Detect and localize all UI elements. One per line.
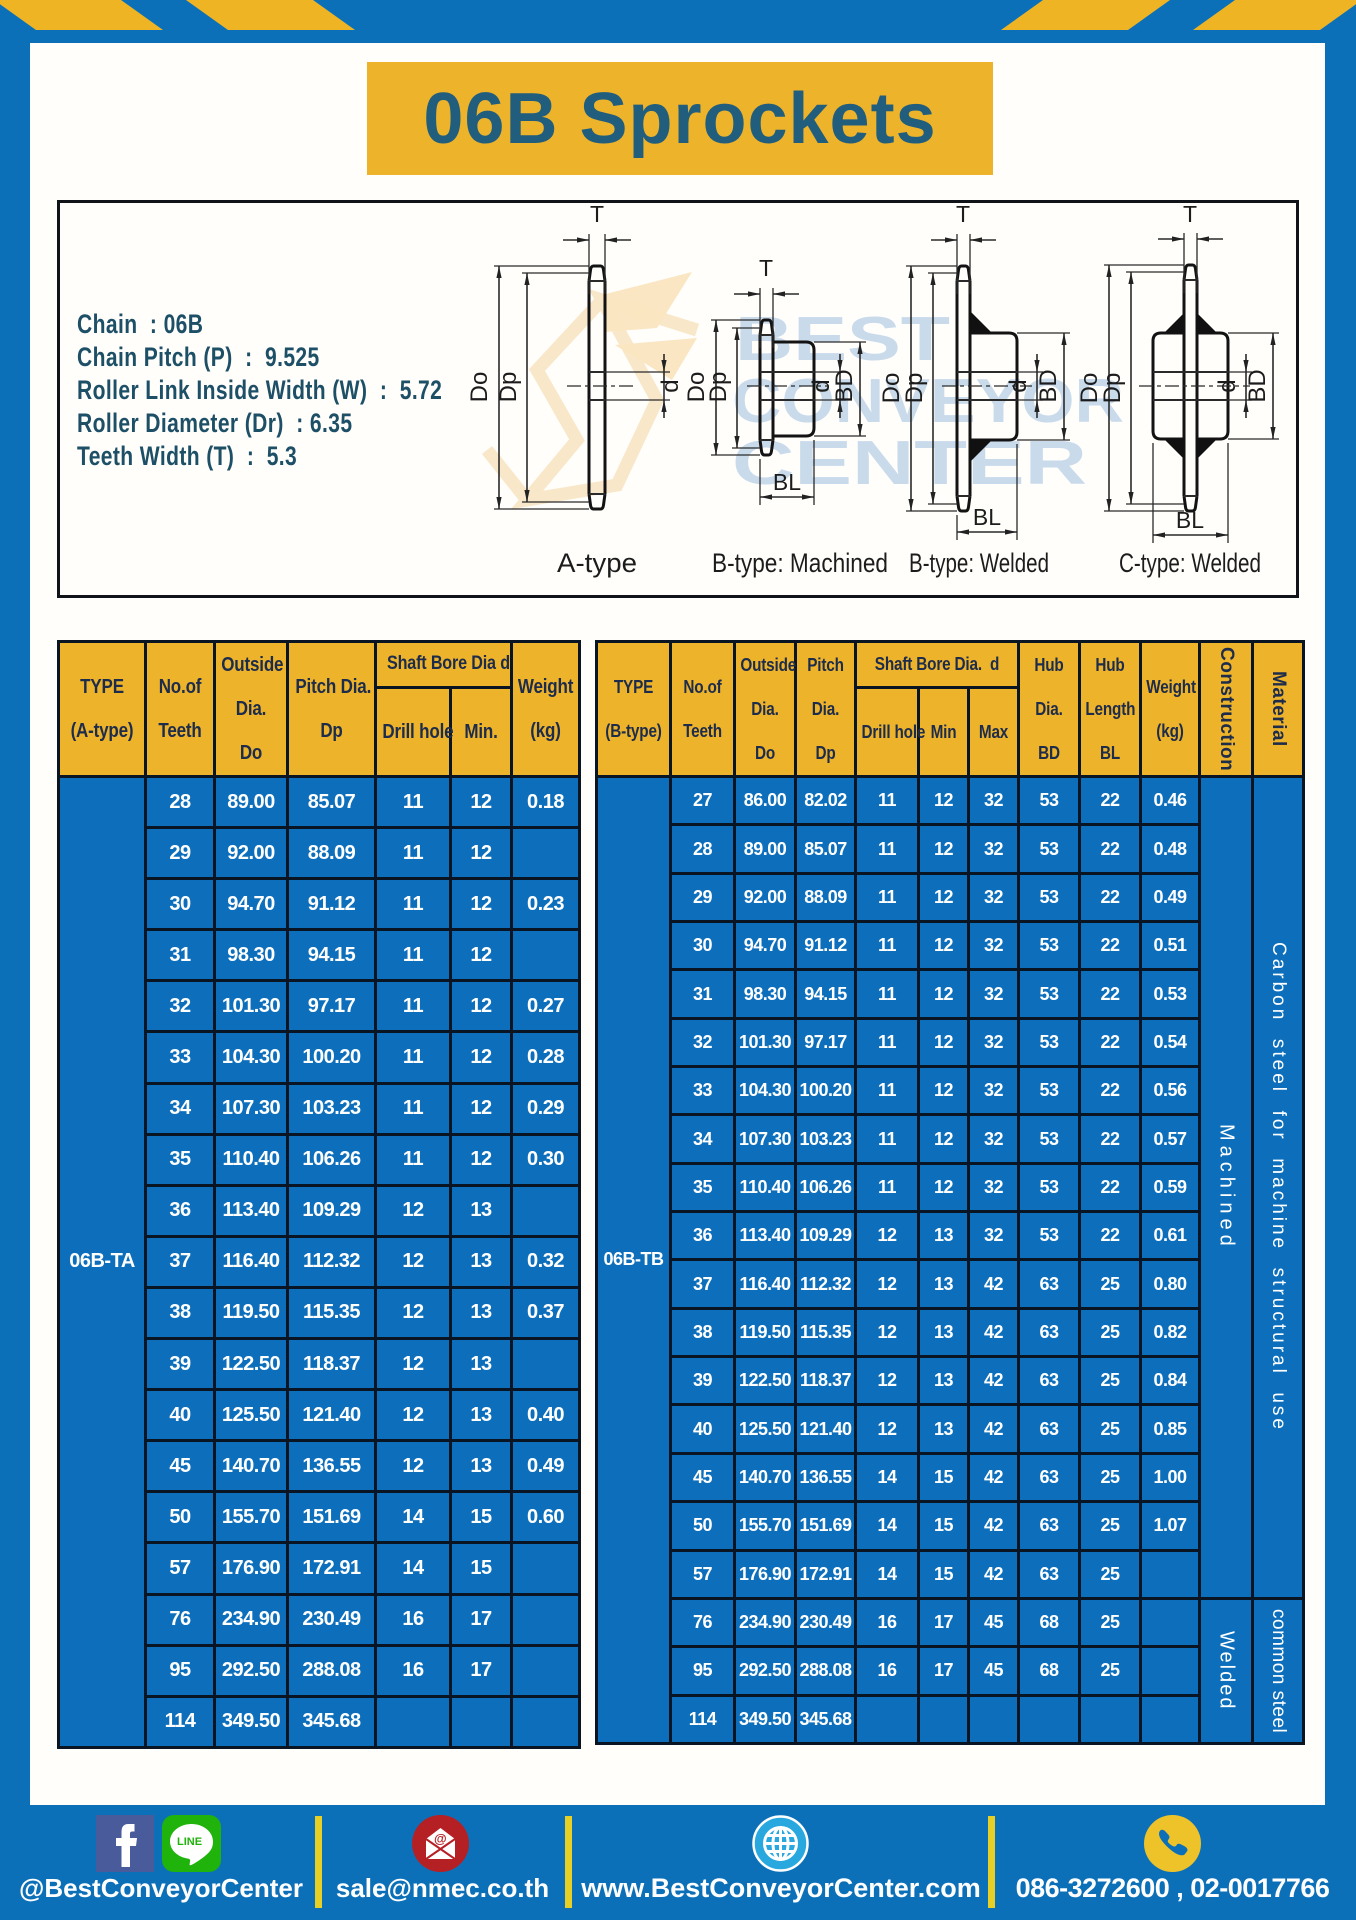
svg-text:Dp: Dp — [901, 373, 928, 404]
svg-text:@: @ — [434, 1831, 447, 1846]
svg-text:BL: BL — [973, 504, 1001, 530]
svg-text:Dp: Dp — [1099, 373, 1126, 404]
svg-text:d: d — [657, 379, 684, 392]
svg-text:d: d — [1005, 379, 1032, 392]
svg-text:BL: BL — [1176, 507, 1204, 533]
svg-text:A-type: A-type — [557, 548, 637, 578]
svg-text:BD: BD — [831, 369, 858, 402]
svg-text:T: T — [590, 201, 604, 227]
svg-text:T: T — [759, 255, 773, 281]
svg-text:T: T — [956, 201, 970, 227]
svg-text:B-type: Machined: B-type: Machined — [712, 548, 888, 578]
svg-text:Dp: Dp — [705, 372, 732, 403]
svg-text:BD: BD — [1244, 369, 1271, 402]
svg-text:BD: BD — [1035, 369, 1062, 402]
svg-text:CONVEYOR: CONVEYOR — [732, 367, 1124, 436]
svg-text:BL: BL — [773, 469, 801, 495]
svg-text:LINE: LINE — [177, 1836, 202, 1848]
svg-text:B-type: Welded: B-type: Welded — [909, 548, 1049, 578]
svg-text:C-type: Welded: C-type: Welded — [1119, 548, 1261, 578]
svg-text:d: d — [1214, 379, 1241, 392]
svg-text:T: T — [1183, 201, 1197, 227]
svg-text:BEST: BEST — [735, 305, 950, 374]
